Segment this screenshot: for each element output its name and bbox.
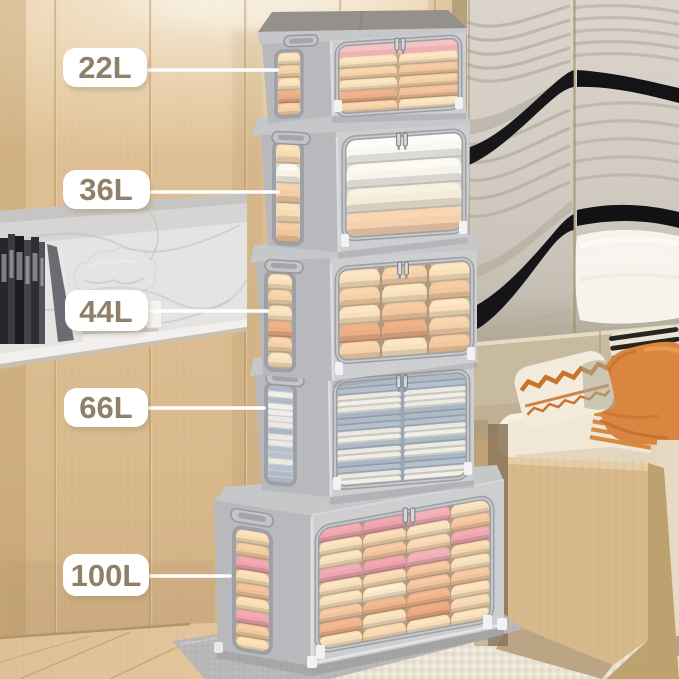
svg-text:22L: 22L <box>78 50 131 85</box>
svg-text:100L: 100L <box>71 558 142 593</box>
svg-text:44L: 44L <box>79 294 132 329</box>
svg-text:36L: 36L <box>79 172 132 207</box>
svg-text:66L: 66L <box>79 390 132 425</box>
